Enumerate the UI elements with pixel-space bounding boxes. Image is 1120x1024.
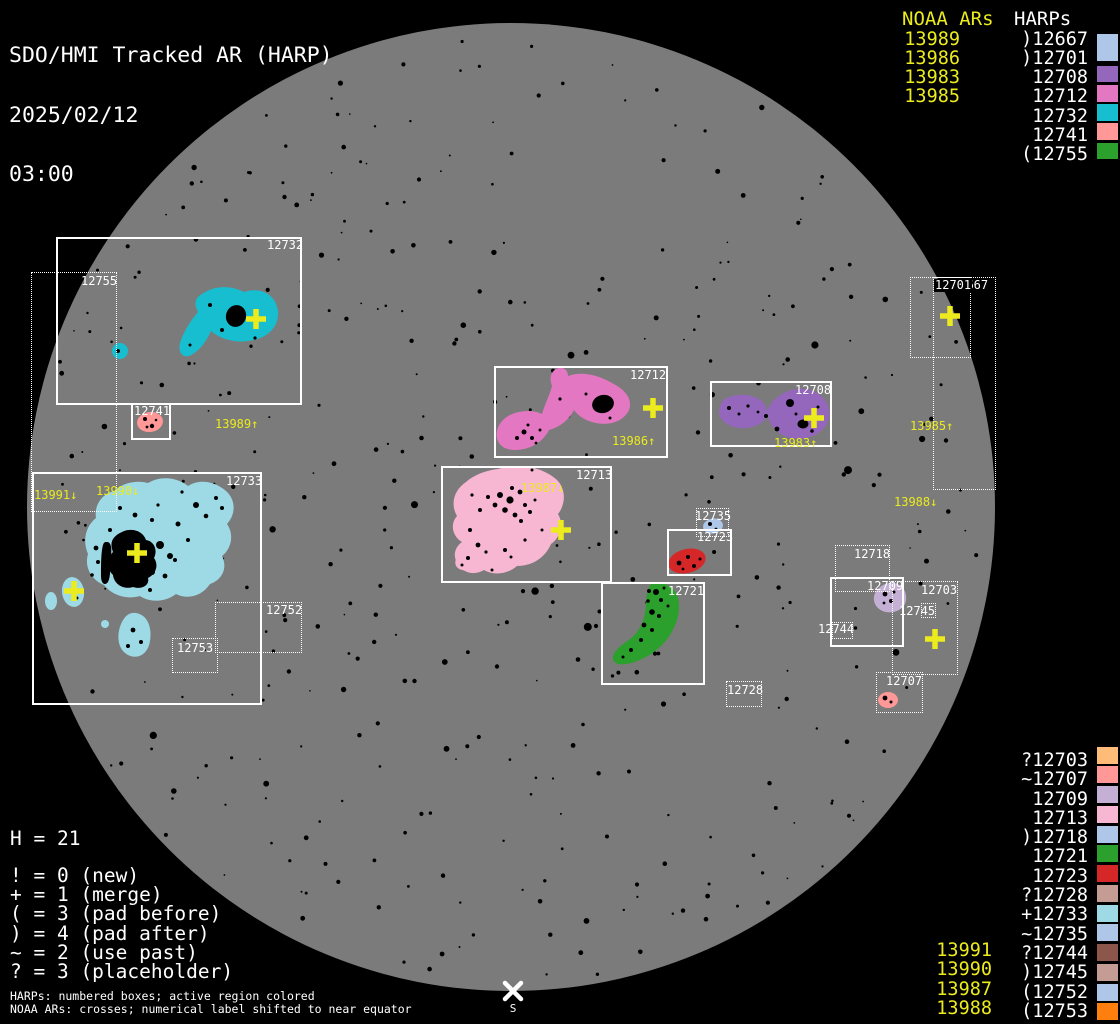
noaa-ar-disk-label: 13986↑ [612, 435, 655, 448]
harp-boxes-layer: 1273212755127411273312752127531271212713… [0, 0, 1120, 1024]
noaa-ar-disk-label: 13985↑ [910, 420, 953, 433]
harp-box-label-12701: 12701 [934, 279, 972, 292]
harp-box-label-12741: 12741 [134, 405, 170, 418]
harp-box-label-12713: 12713 [576, 469, 612, 482]
harp-box-12733 [32, 472, 262, 705]
harp-box-label-12735: 12735 [695, 510, 731, 523]
harp-box-label-12733: 12733 [226, 475, 262, 488]
harp-box-label-12723: 12723 [697, 531, 733, 544]
harp-box-label-12712: 12712 [630, 369, 666, 382]
harp-box-label-12744: 12744 [818, 623, 854, 636]
harp-box-label-12753: 12753 [177, 642, 213, 655]
harp-box-label-12703: 12703 [921, 584, 957, 597]
solar-harp-tracker-window: S 12732127551274112733127521275312712127… [0, 0, 1120, 1024]
harp-box-label-12745: 12745 [899, 605, 935, 618]
noaa-ar-disk-label: 13991↓ [34, 489, 77, 502]
harp-box-label-12707: 12707 [886, 675, 922, 688]
harp-box-label-12708: 12708 [795, 384, 831, 397]
harp-box-label-12721: 12721 [668, 585, 704, 598]
harp-box-label-12752: 12752 [266, 604, 302, 617]
harp-box-label-12728: 12728 [727, 684, 763, 697]
harp-box-label-12718: 12718 [854, 548, 890, 561]
noaa-ar-disk-label: 13990↓ [96, 485, 139, 498]
noaa-ar-disk-label: 13989↑ [215, 418, 258, 431]
noaa-ar-disk-label: 13987↓ [521, 482, 564, 495]
noaa-ar-disk-label: 13988↓ [894, 496, 937, 509]
harp-box-label-12732: 12732 [267, 239, 303, 252]
noaa-ar-disk-label: 13983↑ [774, 437, 817, 450]
harp-box-label-12755: 12755 [81, 275, 117, 288]
